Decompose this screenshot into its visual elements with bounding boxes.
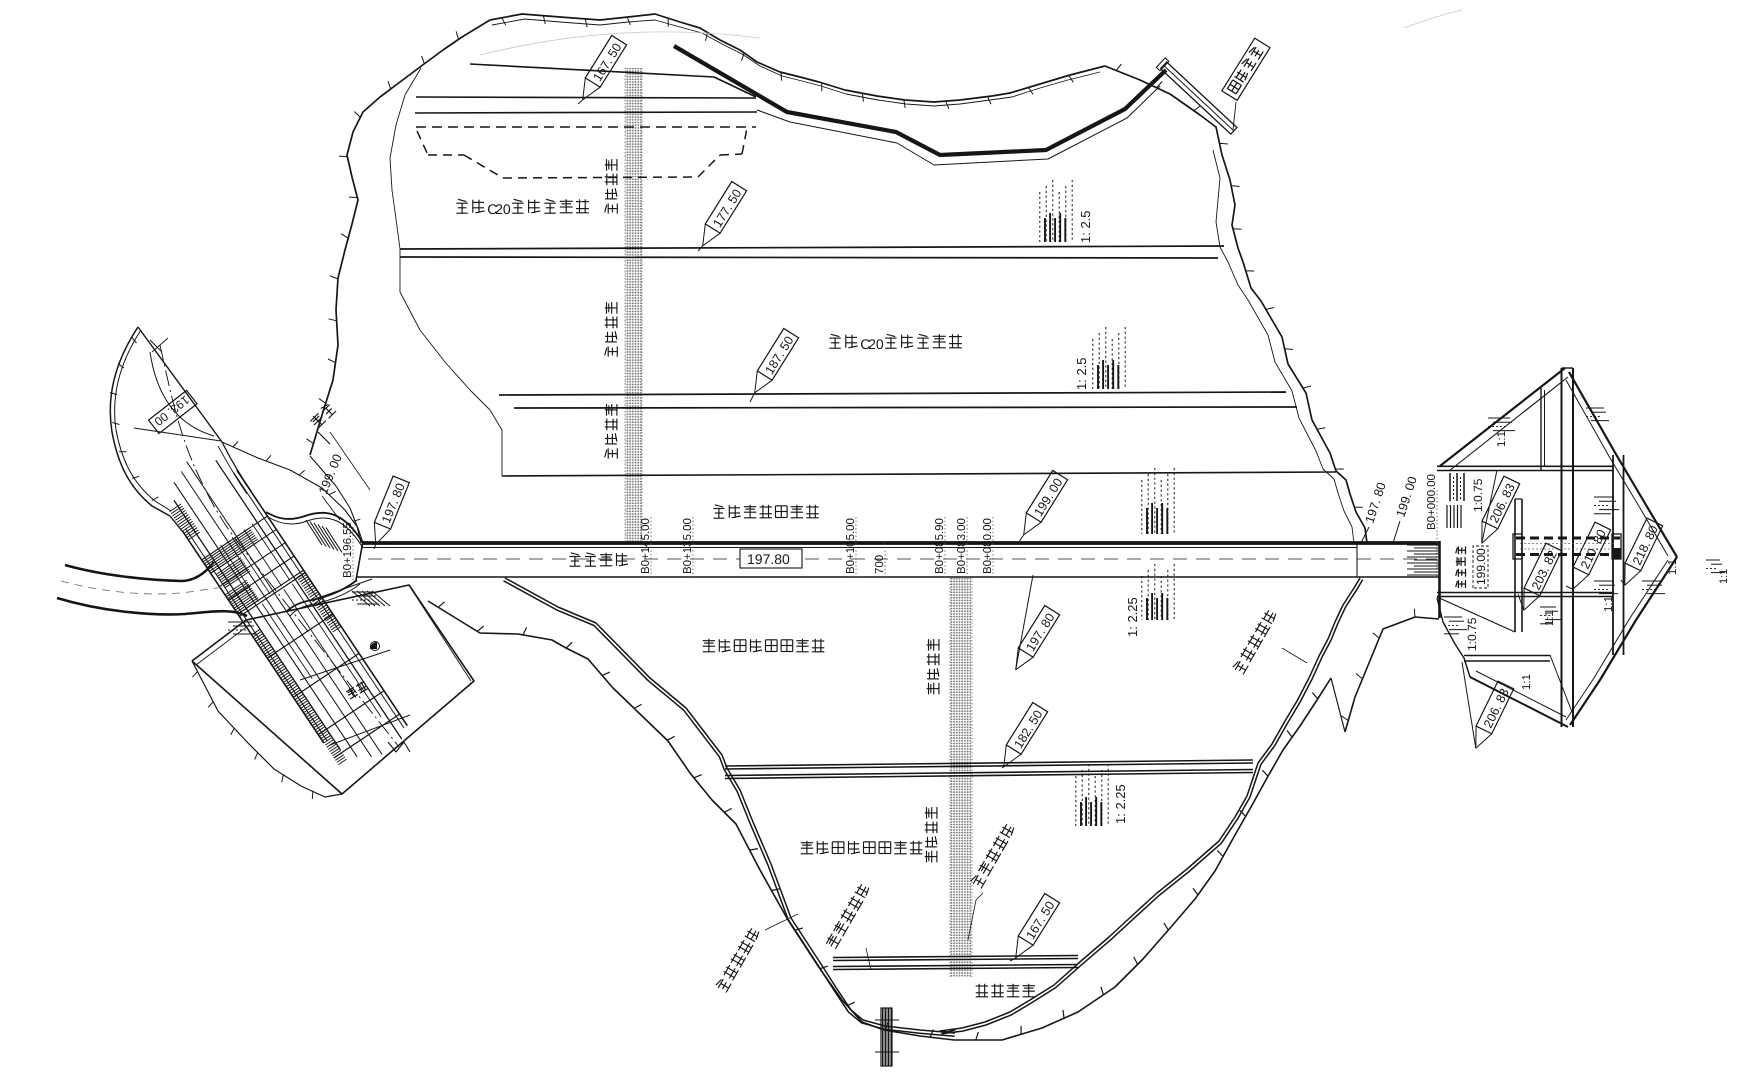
svg-text:700: 700 bbox=[874, 555, 886, 574]
svg-text:B0+083.00: B0+083.00 bbox=[956, 518, 968, 574]
svg-text:2: 2 bbox=[495, 201, 503, 217]
svg-text:0: 0 bbox=[876, 336, 884, 352]
svg-text:199.00: 199.00 bbox=[1474, 548, 1488, 585]
svg-text:1:0.75: 1:0.75 bbox=[1465, 617, 1479, 651]
svg-text:1:0.75: 1:0.75 bbox=[1471, 478, 1485, 512]
svg-text:1:1: 1:1 bbox=[1521, 674, 1533, 690]
svg-text:B0+105.00: B0+105.00 bbox=[845, 518, 857, 574]
svg-text:0: 0 bbox=[503, 201, 511, 217]
svg-text:B0+135.00: B0+135.00 bbox=[682, 518, 694, 574]
svg-text:1: 2.25: 1: 2.25 bbox=[1113, 784, 1128, 824]
svg-text:1:1: 1:1 bbox=[1496, 431, 1508, 447]
svg-text:1:1: 1:1 bbox=[1603, 596, 1615, 612]
svg-text:1: 2.5: 1: 2.5 bbox=[1074, 357, 1089, 390]
svg-text:197.80: 197.80 bbox=[747, 551, 790, 567]
svg-text:1:1: 1:1 bbox=[1667, 559, 1679, 575]
svg-text:1: 2.25: 1: 2.25 bbox=[1125, 597, 1140, 637]
svg-text:B0+145.00: B0+145.00 bbox=[640, 518, 652, 574]
svg-text:B0+196.55: B0+196.55 bbox=[342, 522, 354, 578]
svg-text:2: 2 bbox=[868, 336, 876, 352]
svg-text:1:1: 1:1 bbox=[1718, 569, 1730, 584]
svg-text:1:1: 1:1 bbox=[1544, 610, 1556, 626]
svg-text:B0+000.00: B0+000.00 bbox=[1426, 474, 1438, 530]
svg-text:B0+080.00: B0+080.00 bbox=[982, 518, 994, 574]
svg-text:B0+085.90: B0+085.90 bbox=[934, 518, 946, 574]
svg-text:1: 2.5: 1: 2.5 bbox=[1078, 210, 1093, 243]
